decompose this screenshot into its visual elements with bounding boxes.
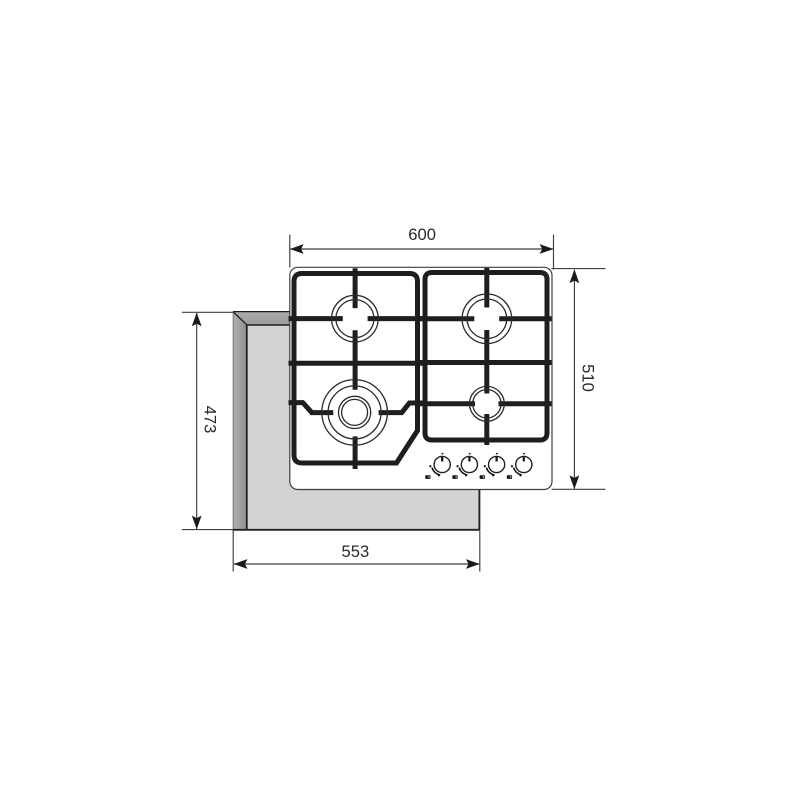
svg-text:473: 473 — [201, 406, 220, 434]
svg-text:510: 510 — [579, 364, 598, 392]
svg-text:600: 600 — [408, 225, 436, 244]
svg-text:553: 553 — [342, 542, 370, 561]
